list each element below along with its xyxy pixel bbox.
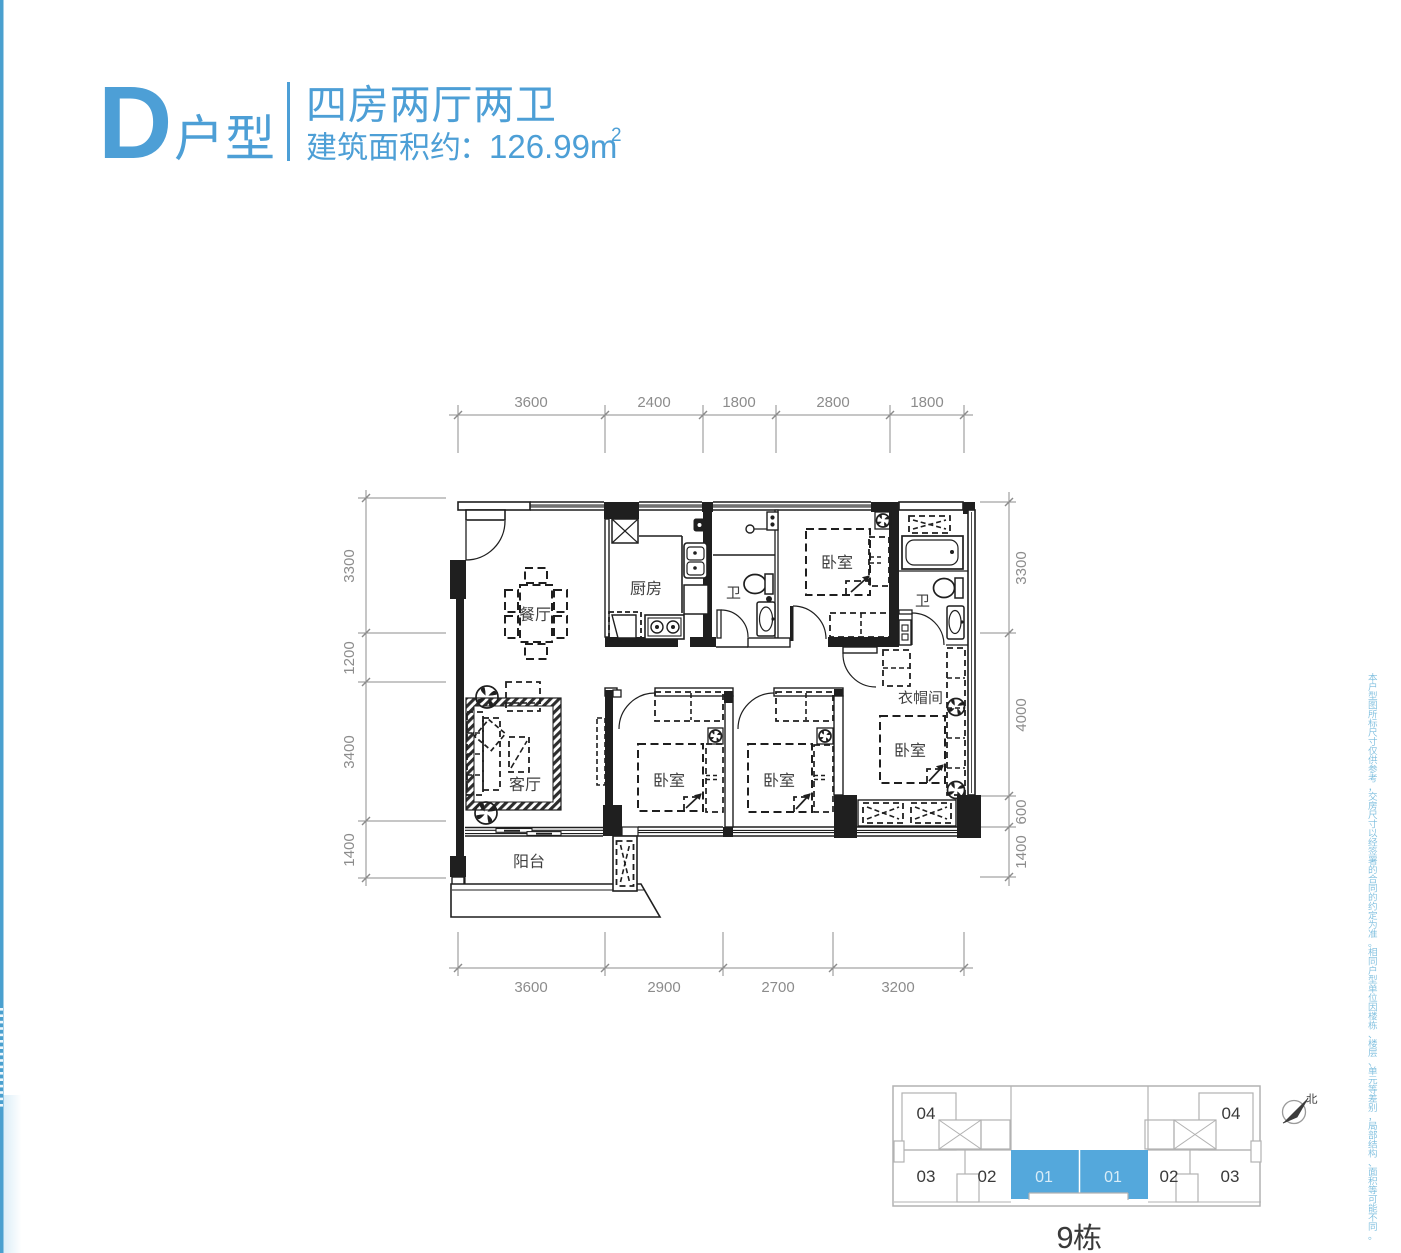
svg-text:600: 600 xyxy=(1013,799,1030,824)
svg-text:2900: 2900 xyxy=(647,979,680,996)
svg-text:2800: 2800 xyxy=(816,394,849,411)
svg-text:1200: 1200 xyxy=(341,641,358,674)
svg-text:3600: 3600 xyxy=(514,394,547,411)
svg-text:1800: 1800 xyxy=(910,394,943,411)
svg-text:1400: 1400 xyxy=(341,833,358,866)
svg-text:2: 2 xyxy=(611,125,622,146)
svg-text:04: 04 xyxy=(917,1104,936,1123)
svg-text:3300: 3300 xyxy=(341,549,358,582)
svg-text:2400: 2400 xyxy=(637,394,670,411)
svg-text:9: 9 xyxy=(1056,1220,1073,1253)
svg-text:126.99m: 126.99m xyxy=(489,128,617,165)
svg-text:3400: 3400 xyxy=(341,735,358,768)
svg-text:02: 02 xyxy=(978,1167,997,1186)
svg-text:4000: 4000 xyxy=(1013,698,1030,731)
svg-text:D: D xyxy=(98,65,172,180)
svg-text:03: 03 xyxy=(917,1167,936,1186)
svg-text:3200: 3200 xyxy=(881,979,914,996)
svg-text:04: 04 xyxy=(1222,1104,1241,1123)
svg-text:3300: 3300 xyxy=(1013,551,1030,584)
svg-text:01: 01 xyxy=(1104,1169,1122,1186)
svg-text:1800: 1800 xyxy=(722,394,755,411)
svg-text:02: 02 xyxy=(1160,1167,1179,1186)
svg-text:2700: 2700 xyxy=(761,979,794,996)
svg-text:01: 01 xyxy=(1035,1169,1053,1186)
svg-text:03: 03 xyxy=(1221,1167,1240,1186)
svg-text:1400: 1400 xyxy=(1013,835,1030,868)
svg-text:3600: 3600 xyxy=(514,979,547,996)
